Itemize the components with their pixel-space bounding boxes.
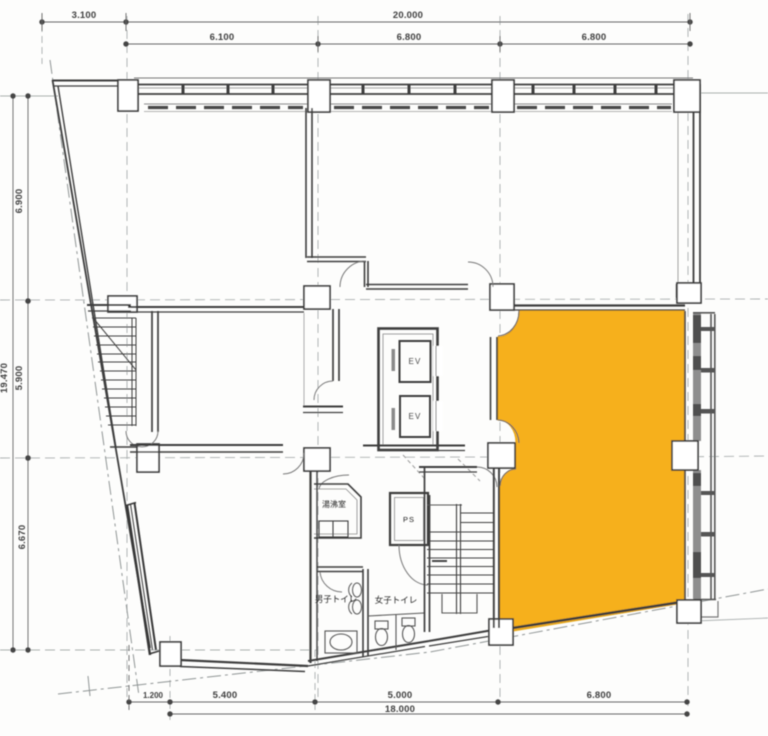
- svg-text:6.100: 6.100: [210, 32, 235, 43]
- svg-text:5.400: 5.400: [213, 690, 238, 701]
- svg-text:3.100: 3.100: [72, 10, 97, 21]
- svg-text:18.000: 18.000: [385, 704, 415, 715]
- svg-text:PS: PS: [403, 515, 415, 524]
- svg-text:男子トイレ: 男子トイレ: [315, 594, 358, 604]
- svg-text:6.800: 6.800: [397, 32, 422, 43]
- svg-text:5.900: 5.900: [14, 366, 25, 391]
- svg-text:20.000: 20.000: [393, 10, 423, 21]
- svg-text:1.200: 1.200: [143, 691, 164, 700]
- svg-text:5.000: 5.000: [388, 690, 413, 701]
- svg-text:EV: EV: [408, 412, 421, 421]
- svg-text:19.470: 19.470: [0, 363, 10, 393]
- svg-text:6.900: 6.900: [14, 189, 25, 214]
- svg-text:女子トイレ: 女子トイレ: [375, 595, 418, 605]
- svg-text:6.800: 6.800: [587, 690, 612, 701]
- svg-text:6.670: 6.670: [17, 525, 28, 550]
- svg-text:6.800: 6.800: [582, 32, 607, 43]
- svg-text:湯沸室: 湯沸室: [322, 499, 346, 509]
- svg-text:EV: EV: [408, 357, 421, 366]
